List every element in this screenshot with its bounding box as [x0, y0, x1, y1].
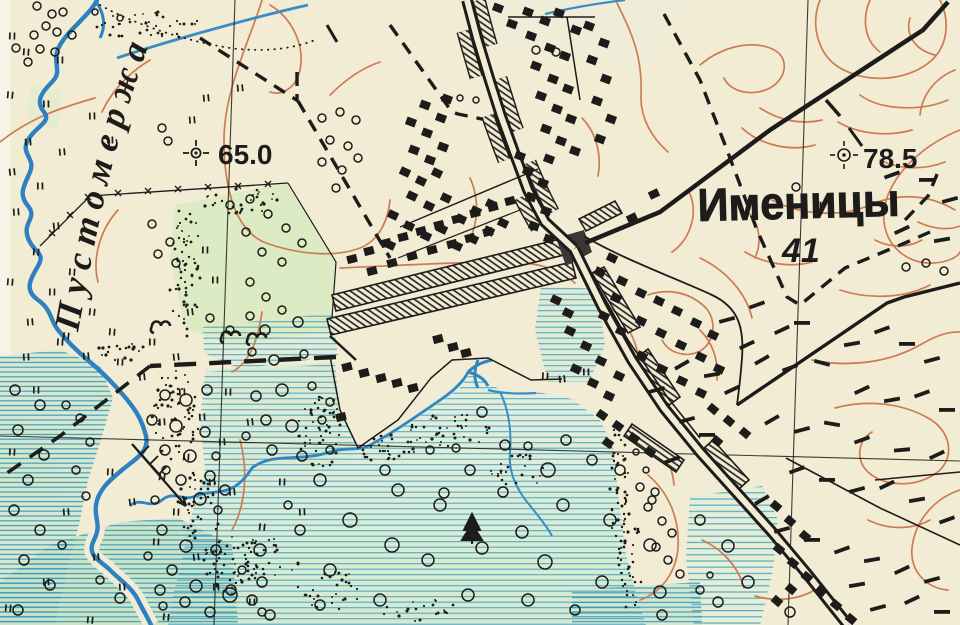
svg-text:41: 41 [781, 232, 820, 270]
svg-text:78.5: 78.5 [863, 143, 918, 174]
svg-text:Именицы: Именицы [697, 174, 900, 231]
svg-text:65.0: 65.0 [218, 139, 273, 170]
